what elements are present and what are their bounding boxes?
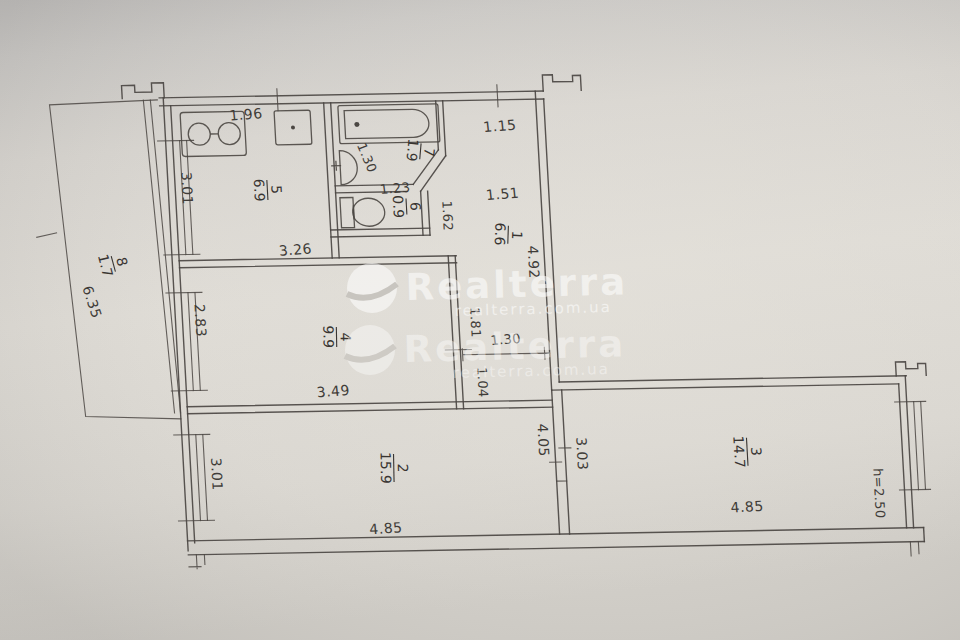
room-number: 5: [268, 185, 284, 194]
dim-room4-bottom: 3.49: [316, 382, 351, 400]
room-area: 0.9: [390, 195, 407, 218]
room-area: 1.9: [403, 138, 421, 163]
dim-kitchen-top: 1.96: [229, 105, 264, 123]
room-number: 3: [748, 447, 764, 456]
room-number: 7: [421, 147, 438, 158]
dim-room2-bottom: 4.85: [369, 519, 404, 537]
room-area: 14.7: [730, 436, 748, 469]
dim-hall-width: 1.51: [485, 185, 520, 203]
room-area: 6.9: [251, 178, 268, 201]
dim-ceiling-height: h=2.50: [870, 468, 888, 519]
room-area: 15.9: [377, 452, 394, 485]
dim-room3-bottom: 4.85: [730, 498, 765, 516]
room-number: 2: [395, 463, 411, 472]
dim-kitchen-window: 3.01: [178, 172, 196, 205]
dim-room3-left: 3.03: [573, 437, 591, 470]
dim-room2-right: 4.05: [535, 424, 553, 457]
dim-wc-depth: 1.62: [439, 200, 456, 231]
floor-plan-photo: 1.96 1.15 3.01 1.30 1.23 1.51 1.62 4.92 …: [0, 0, 960, 640]
dim-room4-top: 3.26: [278, 240, 313, 258]
room-area: 6.6: [492, 222, 509, 246]
room-number: 6: [407, 202, 423, 211]
dim-room4-window: 2.83: [192, 304, 210, 337]
dim-entry-top: 1.15: [482, 117, 517, 135]
dim-room2-window: 3.01: [208, 458, 226, 491]
room-number: 1: [509, 230, 525, 240]
room-area: 9.9: [320, 325, 336, 348]
